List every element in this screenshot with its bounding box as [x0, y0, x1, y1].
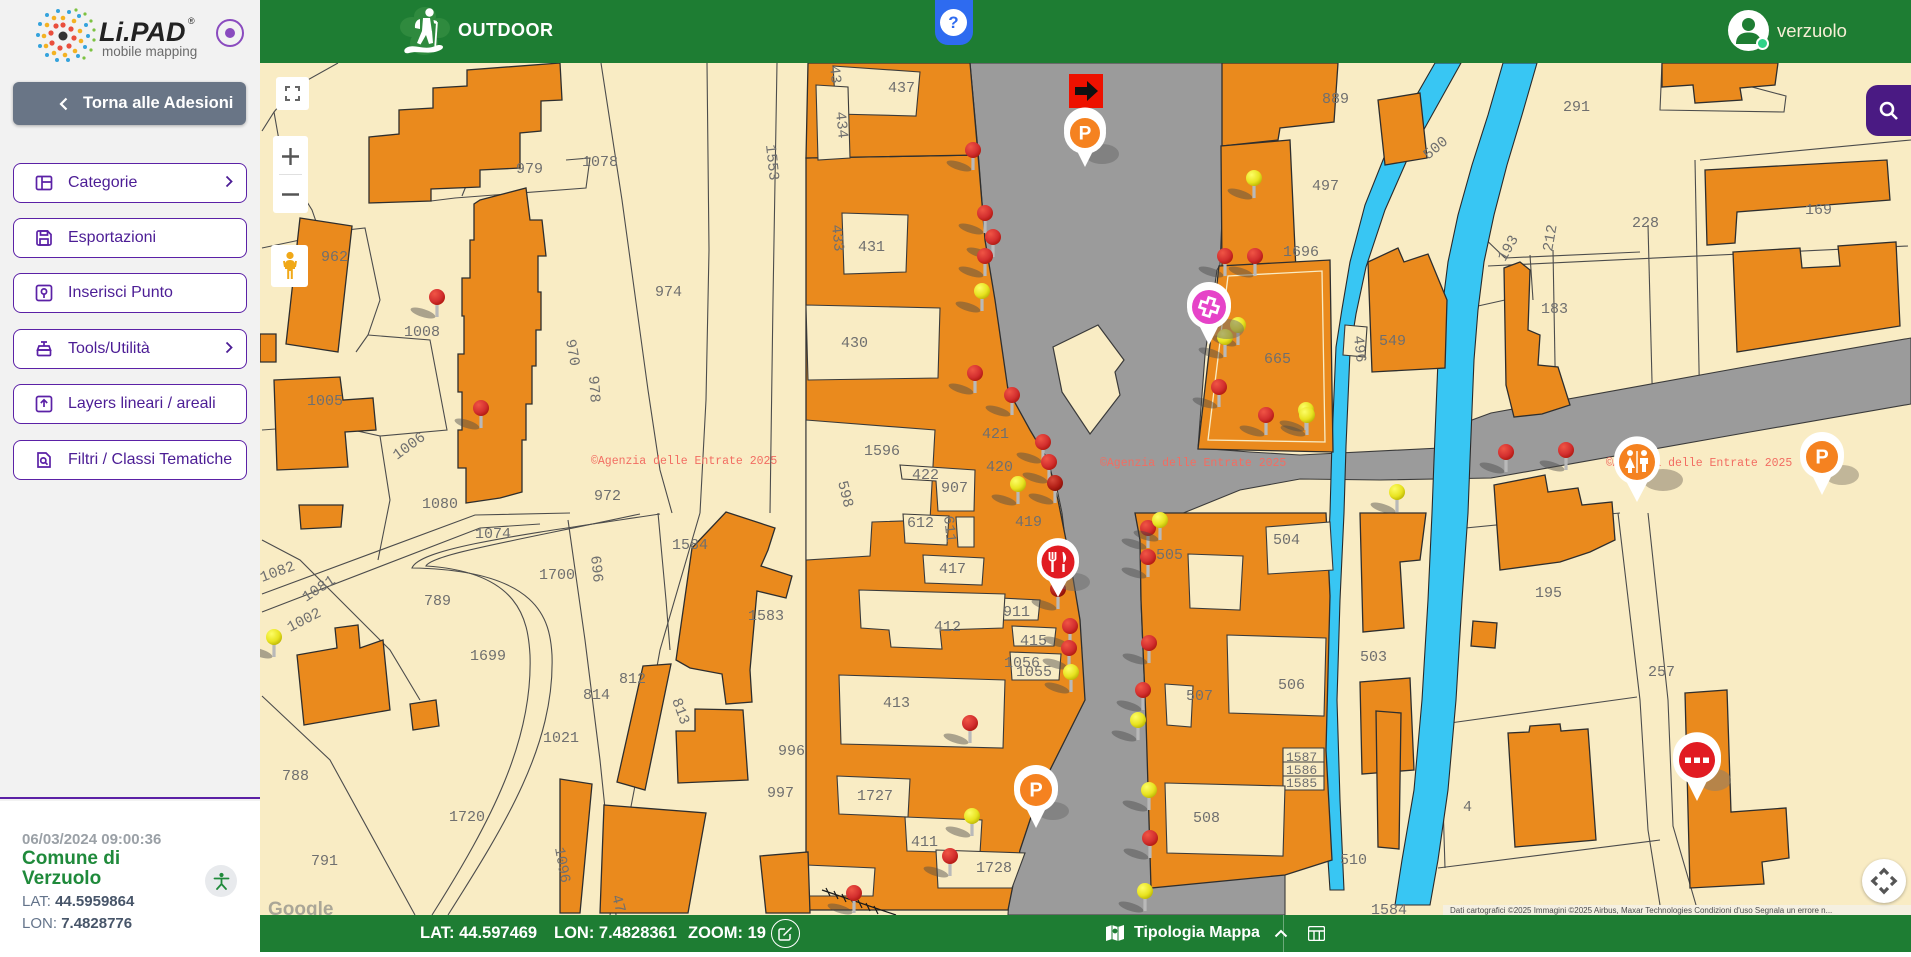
- svg-text:183: 183: [1541, 301, 1568, 318]
- svg-text:1699: 1699: [470, 648, 506, 665]
- svg-text:1728: 1728: [976, 860, 1012, 877]
- svg-text:510: 510: [1340, 852, 1367, 869]
- svg-text:4: 4: [1463, 799, 1472, 816]
- svg-text:1080: 1080: [422, 496, 458, 513]
- svg-text:195: 195: [1535, 585, 1562, 602]
- svg-text:®: ®: [188, 16, 195, 26]
- svg-text:504: 504: [1273, 532, 1300, 549]
- svg-text:789: 789: [424, 593, 451, 610]
- svg-text:434: 434: [831, 111, 851, 140]
- svg-text:411: 411: [911, 834, 938, 851]
- svg-text:889: 889: [1322, 91, 1349, 108]
- svg-text:907: 907: [941, 480, 968, 497]
- svg-text:291: 291: [1563, 99, 1590, 116]
- svg-text:1074: 1074: [475, 526, 511, 543]
- svg-text:43: 43: [825, 65, 844, 85]
- svg-text:420: 420: [986, 459, 1013, 476]
- svg-text:1700: 1700: [539, 567, 575, 584]
- svg-text:1720: 1720: [449, 809, 485, 826]
- svg-text:1585: 1585: [1286, 776, 1317, 791]
- svg-text:506: 506: [1278, 677, 1305, 694]
- svg-text:mobile mapping: mobile mapping: [102, 44, 197, 59]
- svg-text:979: 979: [516, 161, 543, 178]
- svg-text:1696: 1696: [1283, 244, 1319, 261]
- svg-text:419: 419: [1015, 514, 1042, 531]
- svg-text:1055: 1055: [1016, 664, 1052, 681]
- svg-text:812: 812: [619, 671, 646, 688]
- svg-text:228: 228: [1632, 215, 1659, 232]
- svg-text:814: 814: [583, 687, 610, 704]
- svg-text:665: 665: [1264, 351, 1291, 368]
- svg-text:Dati cartografici ©2025 Immag: Dati cartografici ©2025 Immagini ©2025 A…: [1450, 906, 1832, 915]
- svg-text:997: 997: [767, 785, 794, 802]
- svg-text:437: 437: [888, 80, 915, 97]
- svg-text:415: 415: [1020, 633, 1047, 650]
- svg-text:1078: 1078: [582, 154, 618, 171]
- svg-text:962: 962: [321, 249, 348, 266]
- svg-text:412: 412: [934, 619, 961, 636]
- svg-text:503: 503: [1360, 649, 1387, 666]
- svg-text:978: 978: [584, 375, 603, 403]
- svg-text:497: 497: [1312, 178, 1339, 195]
- svg-text:496: 496: [1349, 335, 1369, 364]
- svg-text:1583: 1583: [748, 608, 784, 625]
- svg-text:P: P: [1815, 447, 1828, 469]
- svg-text:996: 996: [778, 743, 805, 760]
- svg-text:169: 169: [1805, 202, 1832, 219]
- svg-text:417: 417: [939, 561, 966, 578]
- svg-text:505: 505: [1156, 547, 1183, 564]
- svg-text:611: 611: [939, 515, 959, 544]
- svg-text:696: 696: [586, 555, 606, 584]
- svg-text:©Agenzia delle Entrate 2025: ©Agenzia delle Entrate 2025: [591, 455, 777, 468]
- svg-text:788: 788: [282, 768, 309, 785]
- svg-text:508: 508: [1193, 810, 1220, 827]
- svg-text:P: P: [1079, 124, 1092, 145]
- svg-text:©Agenzia delle Entrate 2025: ©Agenzia delle Entrate 2025: [1100, 457, 1286, 470]
- svg-text:1596: 1596: [864, 443, 900, 460]
- svg-text:P: P: [1029, 780, 1042, 802]
- svg-text:1008: 1008: [404, 324, 440, 341]
- svg-text:Li.PAD: Li.PAD: [99, 17, 186, 47]
- svg-text:422: 422: [912, 467, 939, 484]
- svg-text:421: 421: [982, 426, 1009, 443]
- svg-text:430: 430: [841, 335, 868, 352]
- svg-text:433: 433: [827, 224, 847, 253]
- svg-text:549: 549: [1379, 333, 1406, 350]
- svg-text:911: 911: [1003, 604, 1030, 621]
- svg-text:974: 974: [655, 284, 682, 301]
- svg-text:791: 791: [311, 853, 338, 870]
- svg-text:612: 612: [907, 515, 934, 532]
- svg-text:1584: 1584: [672, 537, 708, 554]
- svg-text:1727: 1727: [857, 788, 893, 805]
- svg-text:257: 257: [1648, 664, 1675, 681]
- svg-text:972: 972: [594, 488, 621, 505]
- svg-text:413: 413: [883, 695, 910, 712]
- svg-text:507: 507: [1186, 688, 1213, 705]
- svg-text:431: 431: [858, 239, 885, 256]
- svg-text:1021: 1021: [543, 730, 579, 747]
- svg-text:1005: 1005: [307, 393, 343, 410]
